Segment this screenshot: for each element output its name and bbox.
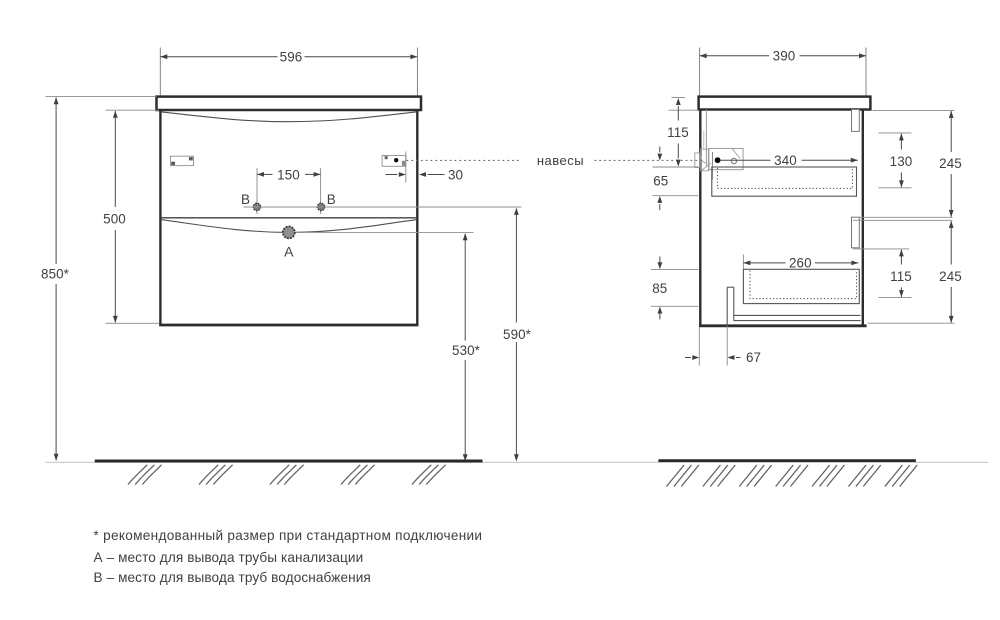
svg-text:В – место для вывода труб водо: В – место для вывода труб водоснабжения <box>94 570 371 585</box>
svg-text:115: 115 <box>667 125 689 140</box>
svg-text:245: 245 <box>939 156 962 171</box>
svg-text:* рекомендованный размер при с: * рекомендованный размер при стандартном… <box>94 528 483 543</box>
svg-text:530*: 530* <box>452 343 480 358</box>
svg-text:В: В <box>241 192 250 207</box>
svg-text:150: 150 <box>277 167 300 182</box>
svg-text:340: 340 <box>774 153 797 168</box>
svg-text:115: 115 <box>890 269 912 284</box>
svg-text:85: 85 <box>652 281 667 296</box>
svg-text:596: 596 <box>280 50 303 65</box>
svg-text:500: 500 <box>103 211 126 226</box>
svg-text:590*: 590* <box>503 327 531 342</box>
svg-text:260: 260 <box>789 256 812 271</box>
svg-text:65: 65 <box>653 173 668 188</box>
svg-text:навесы: навесы <box>537 153 584 168</box>
svg-text:245: 245 <box>939 269 962 284</box>
svg-text:130: 130 <box>890 154 913 169</box>
svg-text:А: А <box>284 243 294 259</box>
svg-text:А – место для вывода трубы кан: А – место для вывода трубы канализации <box>94 550 364 565</box>
svg-text:850*: 850* <box>41 267 69 282</box>
svg-text:В: В <box>327 192 336 207</box>
svg-text:30: 30 <box>448 167 463 182</box>
svg-text:390: 390 <box>773 49 796 64</box>
svg-text:67: 67 <box>746 350 761 365</box>
